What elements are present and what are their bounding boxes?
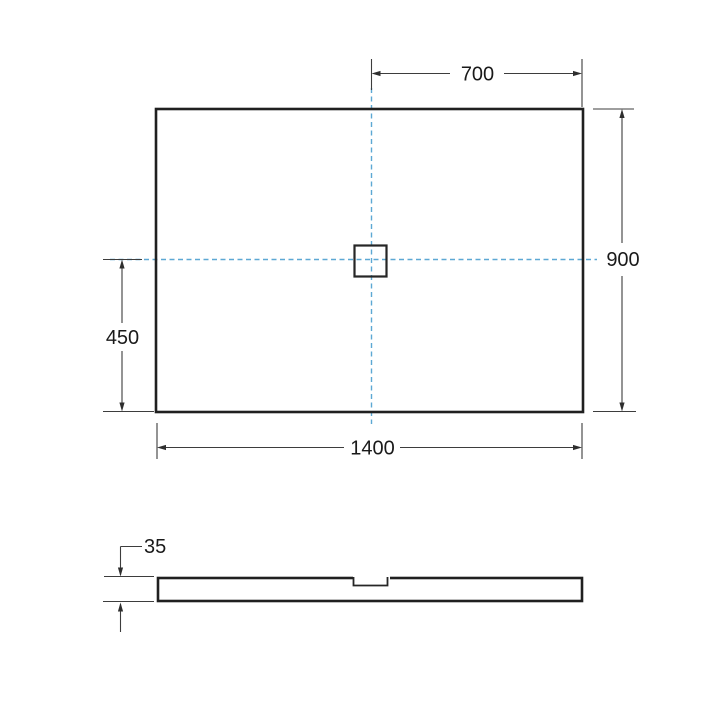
dimension-label-450: 450: [106, 327, 139, 349]
dimension-450: 450: [103, 260, 154, 412]
arrowhead-left: [372, 71, 381, 76]
dimension-label-700: 700: [461, 64, 494, 86]
dimension-label-35: 35: [144, 536, 166, 558]
arrowhead-up: [619, 109, 624, 118]
dimension-label-1400: 1400: [350, 438, 395, 460]
dimension-900: 900: [593, 109, 640, 412]
side-view: 35: [103, 536, 582, 632]
arrowhead-up: [119, 260, 124, 269]
arrowhead-down: [118, 568, 123, 577]
drain-square: [355, 246, 387, 277]
arrowhead-up: [118, 603, 123, 612]
drain-recess-notch: [354, 577, 388, 586]
dimension-700: 700: [372, 59, 583, 107]
shower-tray-drawing: 700 900 450: [0, 0, 724, 724]
top-view: 700 900 450: [103, 59, 640, 460]
tray-outline: [156, 109, 583, 412]
arrowhead-down: [619, 403, 624, 412]
arrowhead-down: [119, 403, 124, 412]
technical-drawing-canvas: 700 900 450: [0, 0, 724, 724]
arrowhead-right: [573, 71, 582, 76]
arrowhead-left: [157, 445, 166, 450]
dimension-label-900: 900: [606, 249, 639, 271]
dimension-1400: 1400: [157, 423, 582, 460]
arrowhead-right: [573, 445, 582, 450]
